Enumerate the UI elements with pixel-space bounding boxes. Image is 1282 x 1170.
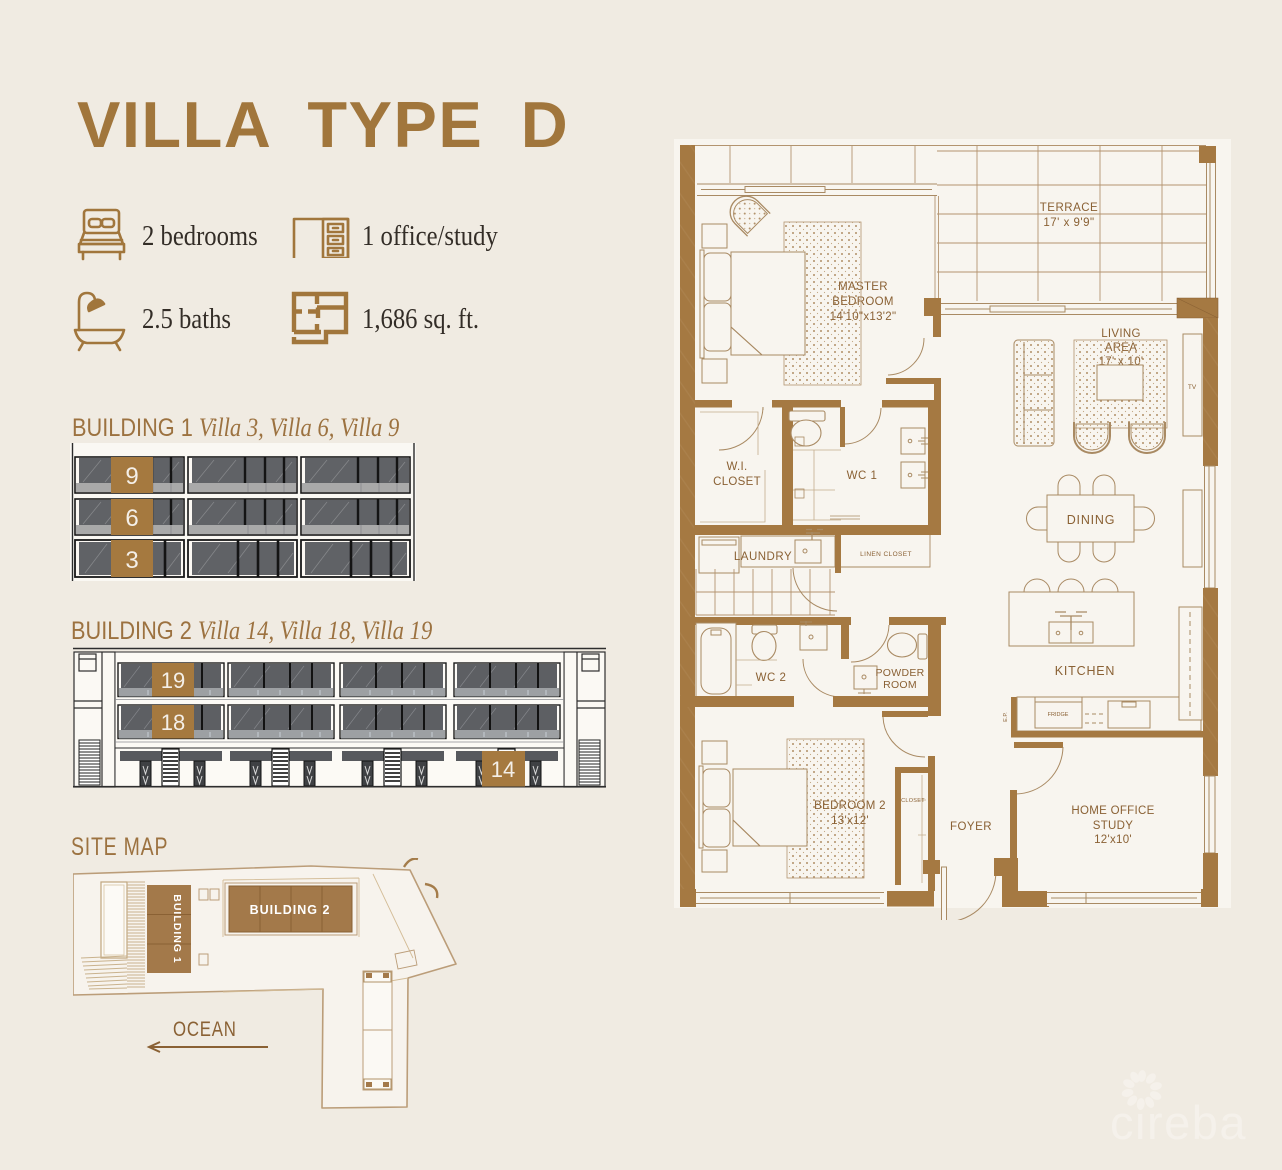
svg-text:ROOM: ROOM bbox=[883, 679, 917, 691]
svg-text:E.P.: E.P. bbox=[1003, 712, 1009, 722]
svg-text:TV: TV bbox=[1188, 384, 1197, 391]
svg-text:FRIDGE: FRIDGE bbox=[1048, 712, 1069, 718]
svg-text:WC 2: WC 2 bbox=[756, 672, 787, 684]
svg-text:BUILDING 2: BUILDING 2 bbox=[250, 903, 331, 917]
svg-text:cireba: cireba bbox=[1110, 1096, 1247, 1149]
svg-text:STUDY: STUDY bbox=[1093, 820, 1134, 832]
svg-text:18: 18 bbox=[161, 710, 185, 735]
svg-text:TERRACE: TERRACE bbox=[1040, 202, 1098, 214]
svg-text:WC 1: WC 1 bbox=[847, 470, 878, 482]
svg-text:14: 14 bbox=[491, 757, 515, 782]
svg-text:W.I.: W.I. bbox=[726, 461, 747, 473]
svg-text:19: 19 bbox=[161, 668, 185, 693]
svg-text:CLOSET: CLOSET bbox=[713, 476, 761, 488]
svg-text:BUILDING 1: BUILDING 1 bbox=[171, 894, 183, 964]
svg-text:13'x12': 13'x12' bbox=[831, 815, 869, 827]
svg-text:LAUNDRY: LAUNDRY bbox=[734, 551, 792, 563]
svg-text:3: 3 bbox=[125, 547, 138, 574]
svg-text:POWDER: POWDER bbox=[875, 667, 924, 679]
svg-text:CLOSET: CLOSET bbox=[901, 798, 925, 804]
svg-text:LIVING: LIVING bbox=[1101, 328, 1141, 340]
svg-text:6: 6 bbox=[125, 505, 138, 532]
svg-text:BEDROOM 2: BEDROOM 2 bbox=[814, 800, 886, 812]
svg-text:17' x 9'9": 17' x 9'9" bbox=[1043, 217, 1094, 229]
svg-text:HOME OFFICE: HOME OFFICE bbox=[1071, 805, 1154, 817]
svg-text:9: 9 bbox=[125, 463, 138, 490]
svg-text:12'x10': 12'x10' bbox=[1094, 834, 1132, 846]
svg-text:KITCHEN: KITCHEN bbox=[1055, 664, 1115, 678]
svg-text:FOYER: FOYER bbox=[950, 821, 992, 833]
svg-text:DINING: DINING bbox=[1067, 513, 1116, 527]
svg-text:LINEN CLOSET: LINEN CLOSET bbox=[860, 551, 912, 558]
